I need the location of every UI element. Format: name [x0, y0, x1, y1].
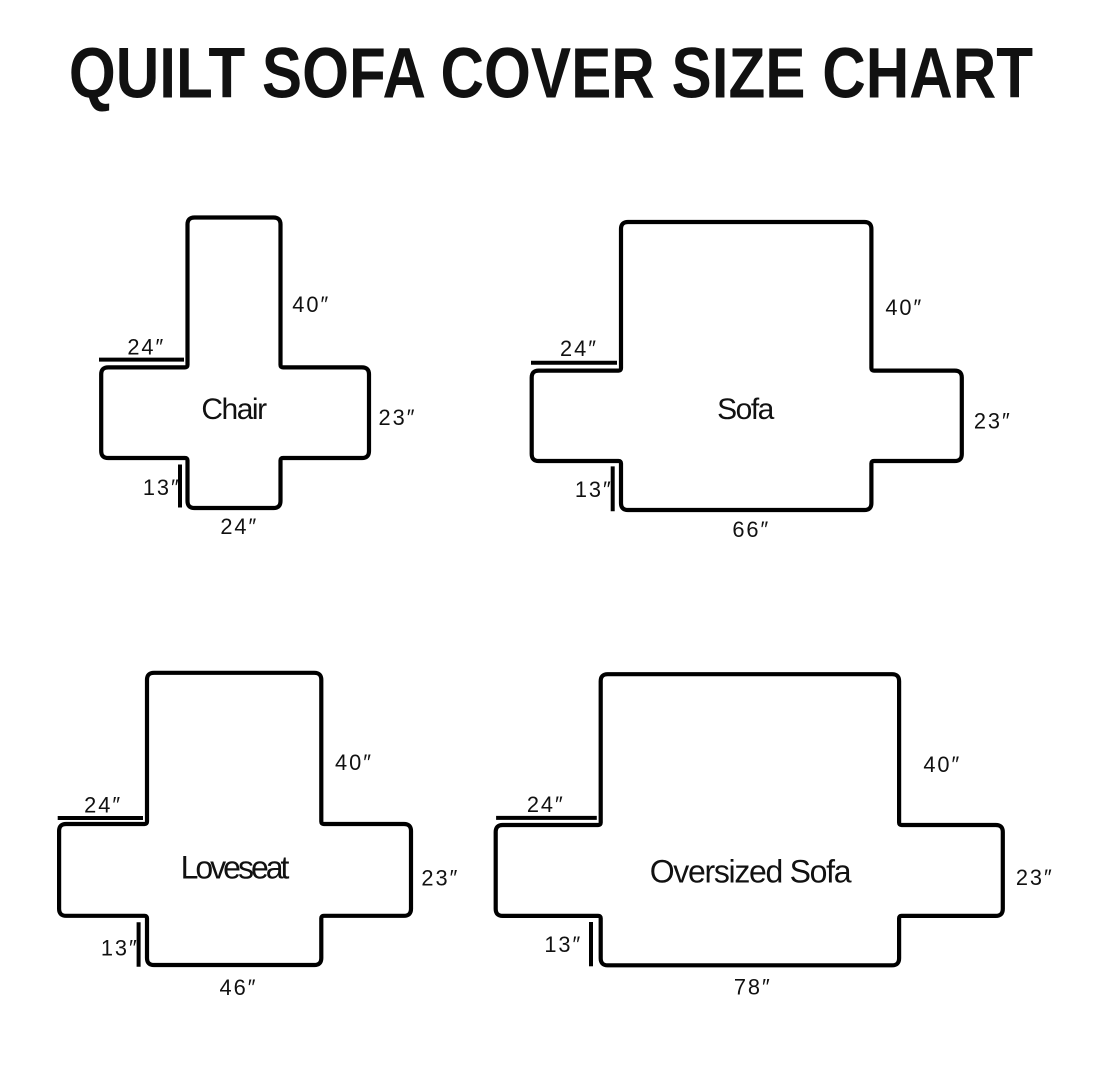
svg-text:QUILT SOFA COVER SIZE CHART: QUILT SOFA COVER SIZE CHART	[69, 34, 1033, 114]
svg-text:24″: 24″	[127, 335, 165, 360]
svg-text:40″: 40″	[923, 752, 961, 777]
svg-text:40″: 40″	[335, 750, 373, 775]
svg-text:Chair: Chair	[201, 393, 267, 426]
svg-text:23″: 23″	[379, 405, 417, 430]
svg-text:40″: 40″	[885, 295, 923, 320]
svg-text:24″: 24″	[84, 793, 122, 818]
svg-text:24″: 24″	[220, 514, 258, 539]
svg-text:Sofa: Sofa	[717, 393, 775, 426]
svg-text:23″: 23″	[974, 409, 1012, 434]
svg-text:23″: 23″	[1016, 865, 1054, 890]
svg-text:24″: 24″	[560, 336, 598, 361]
svg-text:66″: 66″	[732, 517, 770, 542]
svg-text:23″: 23″	[421, 866, 459, 891]
svg-text:46″: 46″	[220, 975, 258, 1000]
svg-text:Oversized Sofa: Oversized Sofa	[650, 853, 852, 889]
svg-text:78″: 78″	[734, 975, 772, 1000]
svg-text:13″: 13″	[101, 935, 139, 960]
svg-text:Loveseat: Loveseat	[181, 849, 290, 885]
svg-text:40″: 40″	[292, 292, 330, 317]
svg-text:13″: 13″	[575, 477, 613, 502]
svg-text:24″: 24″	[527, 792, 565, 817]
svg-text:13″: 13″	[544, 932, 582, 957]
svg-text:13″: 13″	[143, 475, 181, 500]
